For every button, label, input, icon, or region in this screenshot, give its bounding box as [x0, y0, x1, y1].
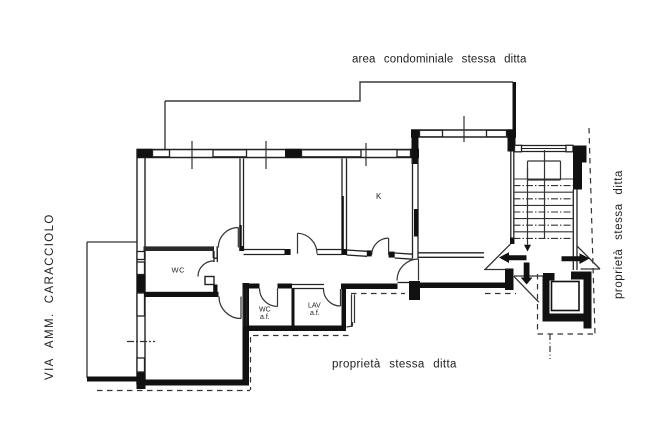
- svg-text:LAV: LAV: [308, 303, 321, 310]
- svg-text:proprietà stessa ditta: proprietà stessa ditta: [332, 359, 457, 371]
- svg-text:a.f.: a.f.: [260, 314, 270, 321]
- svg-text:area condominiale stessa ditta: area condominiale stessa ditta: [352, 54, 527, 66]
- svg-text:K: K: [376, 192, 382, 201]
- svg-text:proprietà stessa ditta: proprietà stessa ditta: [613, 170, 625, 299]
- svg-text:WC: WC: [259, 307, 271, 314]
- svg-text:VIA AMM. CARACCIOLO: VIA AMM. CARACCIOLO: [44, 213, 56, 380]
- svg-text:a.f.: a.f.: [310, 310, 320, 317]
- svg-text:WC: WC: [172, 266, 186, 275]
